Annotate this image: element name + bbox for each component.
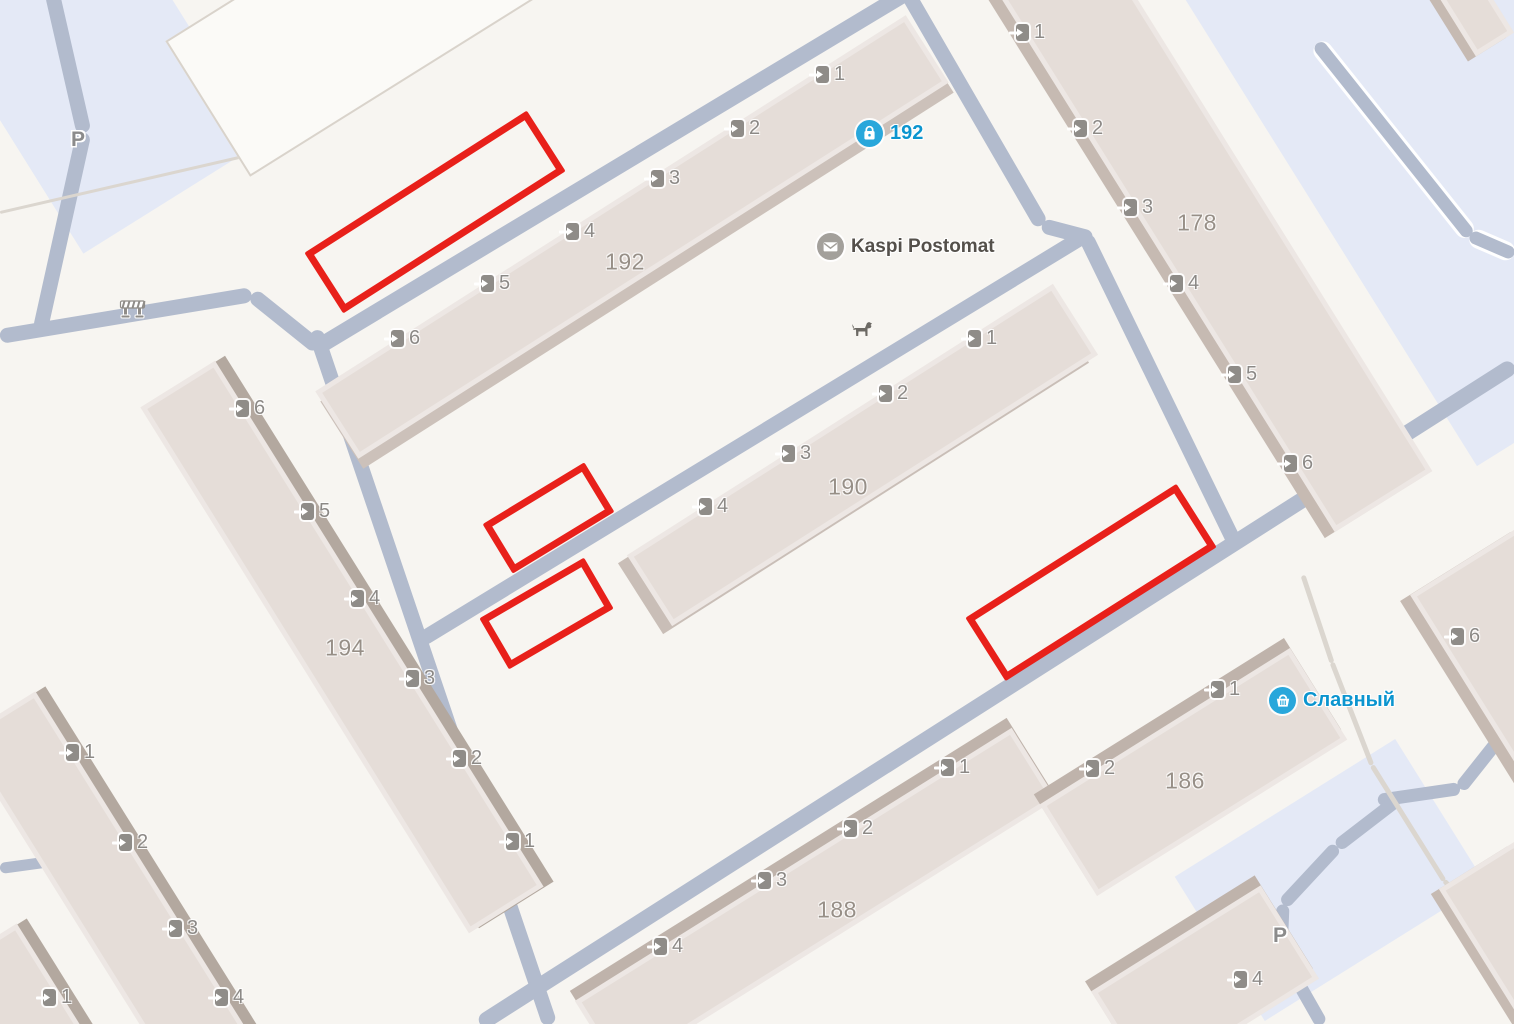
entrance-number: 2	[471, 747, 482, 770]
door-entrance-icon	[1211, 681, 1224, 698]
entrance-marker-188-4[interactable]: 4	[654, 935, 683, 958]
door-entrance-icon	[215, 989, 228, 1006]
arrow-into-door-icon	[647, 942, 662, 951]
entrance-number: 2	[1104, 757, 1115, 780]
door-entrance-icon	[731, 120, 744, 137]
entrance-number: 5	[1246, 363, 1257, 386]
arrow-into-door-icon	[692, 502, 707, 511]
parking-icon[interactable]: P	[71, 128, 85, 152]
arrow-into-door-icon	[961, 334, 976, 343]
entrance-number: 3	[1142, 196, 1153, 219]
entrance-marker-left-2[interactable]: 2	[119, 831, 148, 854]
door-entrance-icon	[699, 498, 712, 515]
entrance-number: 5	[319, 500, 330, 523]
entrance-number: 2	[137, 831, 148, 854]
arrow-into-door-icon	[112, 838, 127, 847]
door-entrance-icon	[968, 330, 981, 347]
arrow-into-door-icon	[36, 993, 51, 1002]
arrow-into-door-icon	[837, 824, 852, 833]
door-entrance-icon	[391, 330, 404, 347]
entrance-number: 1	[1034, 21, 1045, 44]
entrance-marker-left-4[interactable]: 4	[215, 986, 244, 1009]
entrance-marker-192-6[interactable]: 6	[391, 327, 420, 350]
poi-kaspi-postomat[interactable]: Kaspi Postomat	[817, 233, 995, 260]
door-entrance-icon	[169, 920, 182, 937]
entrance-number: 4	[672, 935, 683, 958]
entrance-number: 1	[834, 63, 845, 86]
arrow-into-door-icon	[1079, 764, 1094, 773]
arrow-into-door-icon	[559, 227, 574, 236]
arrow-into-door-icon	[1204, 685, 1219, 694]
entrance-marker-192-3[interactable]: 3	[651, 167, 680, 190]
door-entrance-icon	[758, 872, 771, 889]
door-entrance-icon	[119, 834, 132, 851]
entrance-marker-178-5[interactable]: 5	[1228, 363, 1257, 386]
entrance-marker-188-2[interactable]: 2	[844, 817, 873, 840]
entrance-number: 3	[800, 442, 811, 465]
door-entrance-icon	[1228, 366, 1241, 383]
door-entrance-icon	[1234, 971, 1247, 988]
entrance-marker-186-2[interactable]: 2	[1086, 757, 1115, 780]
poi-label: 192	[890, 122, 923, 145]
door-entrance-icon	[351, 590, 364, 607]
door-entrance-icon	[1451, 628, 1464, 645]
arrow-into-door-icon	[294, 507, 309, 516]
building-number-label: 186	[1165, 768, 1205, 795]
arrow-into-door-icon	[1117, 203, 1132, 212]
entrance-number: 2	[1092, 117, 1103, 140]
arrow-into-door-icon	[751, 876, 766, 885]
entrance-marker-190-1[interactable]: 1	[968, 327, 997, 350]
entrance-marker-br-4[interactable]: 4	[1234, 968, 1263, 991]
entrance-marker-194-2[interactable]: 2	[453, 747, 482, 770]
entrance-marker-left-3[interactable]: 3	[169, 917, 198, 940]
entrance-number: 4	[233, 986, 244, 1009]
entrance-number: 6	[409, 327, 420, 350]
arrow-into-door-icon	[1009, 28, 1024, 37]
door-entrance-icon	[1086, 760, 1099, 777]
poi-label: Kaspi Postomat	[851, 236, 995, 258]
entrance-number: 1	[959, 756, 970, 779]
building-188[interactable]	[574, 728, 1055, 1024]
arrow-into-door-icon	[1221, 370, 1236, 379]
door-entrance-icon	[844, 820, 857, 837]
arrow-into-door-icon	[809, 70, 824, 79]
door-entrance-icon	[453, 750, 466, 767]
entrance-marker-186-1[interactable]: 1	[1211, 678, 1240, 701]
bag-icon	[856, 120, 883, 147]
arrow-into-door-icon	[208, 993, 223, 1002]
door-entrance-icon	[1016, 24, 1029, 41]
poi-shop-192[interactable]: 192	[856, 120, 923, 147]
arrow-into-door-icon	[1227, 975, 1242, 984]
door-entrance-icon	[654, 938, 667, 955]
poi-label: Славный	[1303, 689, 1395, 712]
entrance-marker-178-6[interactable]: 6	[1284, 452, 1313, 475]
building-number-label: 188	[817, 897, 857, 924]
door-entrance-icon	[506, 833, 519, 850]
building-number-label: 194	[325, 635, 365, 662]
building-number-label: 192	[605, 249, 645, 276]
door-entrance-icon	[406, 670, 419, 687]
entrance-number: 3	[669, 167, 680, 190]
entrance-marker-194-5[interactable]: 5	[301, 500, 330, 523]
arrow-into-door-icon	[775, 449, 790, 458]
entrance-number: 1	[1229, 678, 1240, 701]
entrance-number: 2	[862, 817, 873, 840]
building-number-label: 190	[828, 474, 868, 501]
entrance-marker-188-1[interactable]: 1	[941, 756, 970, 779]
entrance-marker-192-2[interactable]: 2	[731, 117, 760, 140]
door-entrance-icon	[879, 385, 892, 402]
entrance-marker-left2-1[interactable]: 1	[43, 986, 72, 1009]
arrow-into-door-icon	[384, 334, 399, 343]
entrance-marker-178-3[interactable]: 3	[1124, 196, 1153, 219]
arrow-into-door-icon	[162, 924, 177, 933]
entrance-marker-192-5[interactable]: 5	[481, 272, 510, 295]
entrance-marker-left-1[interactable]: 1	[66, 741, 95, 764]
basket-icon	[1269, 687, 1296, 714]
envelope-icon	[817, 233, 844, 260]
entrance-number: 3	[776, 869, 787, 892]
entrance-marker-190-2[interactable]: 2	[879, 382, 908, 405]
door-entrance-icon	[1170, 275, 1183, 292]
arrow-into-door-icon	[724, 124, 739, 133]
door-entrance-icon	[816, 66, 829, 83]
entrance-number: 6	[254, 397, 265, 420]
entrance-marker-178-1[interactable]: 1	[1016, 21, 1045, 44]
entrance-number: 2	[749, 117, 760, 140]
entrance-marker-194-3[interactable]: 3	[406, 667, 435, 690]
entrance-marker-190-3[interactable]: 3	[782, 442, 811, 465]
entrance-number: 6	[1302, 452, 1313, 475]
entrance-number: 4	[1188, 272, 1199, 295]
entrance-marker-190-4[interactable]: 4	[699, 495, 728, 518]
entrance-number: 6	[1469, 625, 1480, 648]
door-entrance-icon	[481, 275, 494, 292]
entrance-marker-188-3[interactable]: 3	[758, 869, 787, 892]
door-entrance-icon	[651, 170, 664, 187]
door-entrance-icon	[1284, 455, 1297, 472]
arrow-into-door-icon	[499, 837, 514, 846]
door-entrance-icon	[43, 989, 56, 1006]
arrow-into-door-icon	[344, 594, 359, 603]
entrance-number: 1	[61, 986, 72, 1009]
entrance-marker-192-1[interactable]: 1	[816, 63, 845, 86]
arrow-into-door-icon	[1067, 124, 1082, 133]
entrance-marker-194-1[interactable]: 1	[506, 830, 535, 853]
poi-slavny[interactable]: Славный	[1269, 687, 1395, 714]
entrance-number: 5	[499, 272, 510, 295]
entrance-marker-178-2[interactable]: 2	[1074, 117, 1103, 140]
door-entrance-icon	[1074, 120, 1087, 137]
dog-walking-icon[interactable]	[851, 321, 873, 343]
door-entrance-icon	[782, 445, 795, 462]
entrance-number: 3	[187, 917, 198, 940]
entrance-number: 1	[84, 741, 95, 764]
map-canvas[interactable]: 1921901941881861781234561234654321123411…	[0, 0, 1514, 1024]
entrance-number: 1	[986, 327, 997, 350]
entrance-number: 1	[524, 830, 535, 853]
door-entrance-icon	[566, 223, 579, 240]
arrow-into-door-icon	[59, 748, 74, 757]
parking-icon[interactable]: P	[1273, 924, 1287, 948]
entrance-marker-194-4[interactable]: 4	[351, 587, 380, 610]
door-entrance-icon	[236, 400, 249, 417]
door-entrance-icon	[941, 759, 954, 776]
entrance-marker-194-6[interactable]: 6	[236, 397, 265, 420]
entrance-number: 4	[584, 220, 595, 243]
annotation-red-box	[479, 557, 613, 669]
entrance-number: 4	[717, 495, 728, 518]
arrow-into-door-icon	[446, 754, 461, 763]
entrance-number: 2	[897, 382, 908, 405]
footpath	[1301, 574, 1335, 663]
entrance-number: 3	[424, 667, 435, 690]
door-entrance-icon	[301, 503, 314, 520]
barrier-icon[interactable]	[120, 299, 147, 325]
arrow-into-door-icon	[1444, 632, 1459, 641]
arrow-into-door-icon	[229, 404, 244, 413]
arrow-into-door-icon	[934, 763, 949, 772]
arrow-into-door-icon	[399, 674, 414, 683]
entrance-marker-192-4[interactable]: 4	[566, 220, 595, 243]
entrance-number: 4	[369, 587, 380, 610]
arrow-into-door-icon	[1277, 459, 1292, 468]
arrow-into-door-icon	[474, 279, 489, 288]
arrow-into-door-icon	[872, 389, 887, 398]
door-entrance-icon	[1124, 199, 1137, 216]
entrance-marker-178-4[interactable]: 4	[1170, 272, 1199, 295]
entrance-number: 4	[1252, 968, 1263, 991]
arrow-into-door-icon	[644, 174, 659, 183]
door-entrance-icon	[66, 744, 79, 761]
arrow-into-door-icon	[1163, 279, 1178, 288]
building-number-label: 178	[1177, 210, 1217, 237]
entrance-marker-right-6[interactable]: 6	[1451, 625, 1480, 648]
